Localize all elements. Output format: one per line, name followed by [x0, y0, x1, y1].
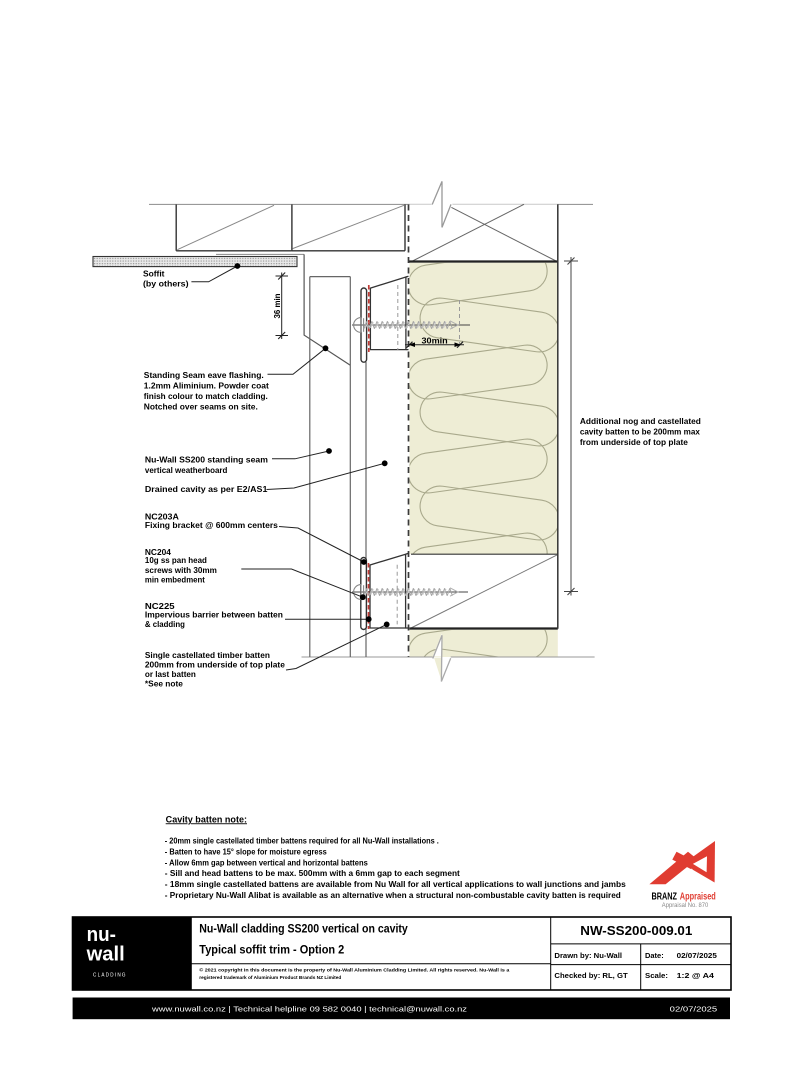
svg-text:- 20mm single castellated tim: - 20mm single castellated timber battens…: [165, 836, 439, 846]
svg-text:Nu-Wall cladding SS200 vertica: Nu-Wall cladding SS200 vertical on cavit…: [199, 924, 408, 936]
svg-text:1.2mm Aliminium. Powder coat: 1.2mm Aliminium. Powder coat: [144, 381, 269, 391]
svg-text:Single castellated timber batt: Single castellated timber batten: [145, 650, 270, 660]
svg-text:Additional nog and castellated: Additional nog and castellated: [580, 416, 701, 426]
svg-text:- Proprietary Nu-Wall Alibat: - Proprietary Nu-Wall Alibat is availabl…: [165, 890, 621, 900]
svg-text:Drawn by: Nu-Wall: Drawn by: Nu-Wall: [554, 951, 622, 960]
svg-text:wall: wall: [86, 944, 125, 966]
svg-text:(by others): (by others): [143, 279, 189, 289]
svg-text:1:2 @ A4: 1:2 @ A4: [677, 971, 715, 980]
svg-text:- Allow 6mm gap between verti: - Allow 6mm gap between vertical and hor…: [165, 857, 368, 867]
svg-text:Standing Seam eave flashing.: Standing Seam eave flashing.: [144, 370, 264, 380]
svg-text:02/07/2025: 02/07/2025: [670, 1005, 718, 1014]
svg-text:- Sill and head battens to be: - Sill and head battens to be max. 500mm…: [165, 868, 460, 878]
svg-text:Appraised: Appraised: [680, 891, 716, 902]
svg-text:36 min: 36 min: [272, 294, 282, 319]
svg-text:Notched over seams on site.: Notched over seams on site.: [144, 402, 258, 412]
svg-text:Typical soffit trim - Option 2: Typical soffit trim - Option 2: [199, 945, 344, 957]
svg-text:& cladding: & cladding: [145, 619, 185, 629]
svg-text:screws with 30mm: screws with 30mm: [145, 565, 217, 575]
svg-text:Appraisal No. 870: Appraisal No. 870: [662, 902, 709, 909]
svg-text:- Batten to have 15° slope fo: - Batten to have 15° slope for moisture …: [165, 846, 327, 856]
svg-text:registered trademark of Alumin: registered trademark of Aluminium Produc…: [199, 975, 341, 981]
svg-text:cavity batten to be 200mm max: cavity batten to be 200mm max: [580, 427, 700, 437]
svg-text:Cavity batten note:: Cavity batten note:: [166, 814, 247, 824]
svg-text:min embedment: min embedment: [145, 575, 205, 585]
svg-text:Soffit: Soffit: [143, 268, 165, 278]
svg-text:02/07/2025: 02/07/2025: [677, 951, 718, 960]
svg-text:www.nuwall.co.nz | Technical: www.nuwall.co.nz | Technical helpline 09…: [151, 1005, 468, 1014]
svg-text:*See note: *See note: [145, 679, 183, 689]
svg-text:- 18mm single castellated bat: - 18mm single castellated battens are av…: [165, 879, 626, 889]
svg-text:Impervious barrier between bat: Impervious barrier between batten: [145, 609, 283, 619]
svg-text:Date:: Date:: [645, 951, 664, 960]
svg-text:vertical weatherboard: vertical weatherboard: [145, 465, 228, 475]
svg-text:Scale:: Scale:: [645, 971, 668, 980]
svg-text:or last batten: or last batten: [145, 669, 196, 679]
svg-text:Nu-Wall SS200 standing seam: Nu-Wall SS200 standing seam: [145, 454, 268, 464]
svg-text:10g ss pan head: 10g ss pan head: [145, 555, 207, 565]
svg-text:30min: 30min: [422, 336, 448, 346]
svg-text:Drained cavity as per E2/AS1: Drained cavity as per E2/AS1: [145, 484, 268, 494]
svg-text:© 2021 copyright in this docum: © 2021 copyright in this document is the…: [199, 967, 509, 974]
svg-text:Fixing bracket @ 600mm centers: Fixing bracket @ 600mm centers: [145, 520, 278, 530]
svg-text:finish colour to match claddin: finish colour to match cladding.: [144, 391, 268, 401]
svg-text:NW-SS200-009.01: NW-SS200-009.01: [580, 923, 692, 938]
svg-text:CLADDING: CLADDING: [93, 973, 127, 979]
svg-text:from underside of top plate: from underside of top plate: [580, 437, 688, 447]
svg-text:Checked by: RL, GT: Checked by: RL, GT: [554, 971, 628, 980]
svg-text:BRANZ: BRANZ: [652, 891, 678, 902]
